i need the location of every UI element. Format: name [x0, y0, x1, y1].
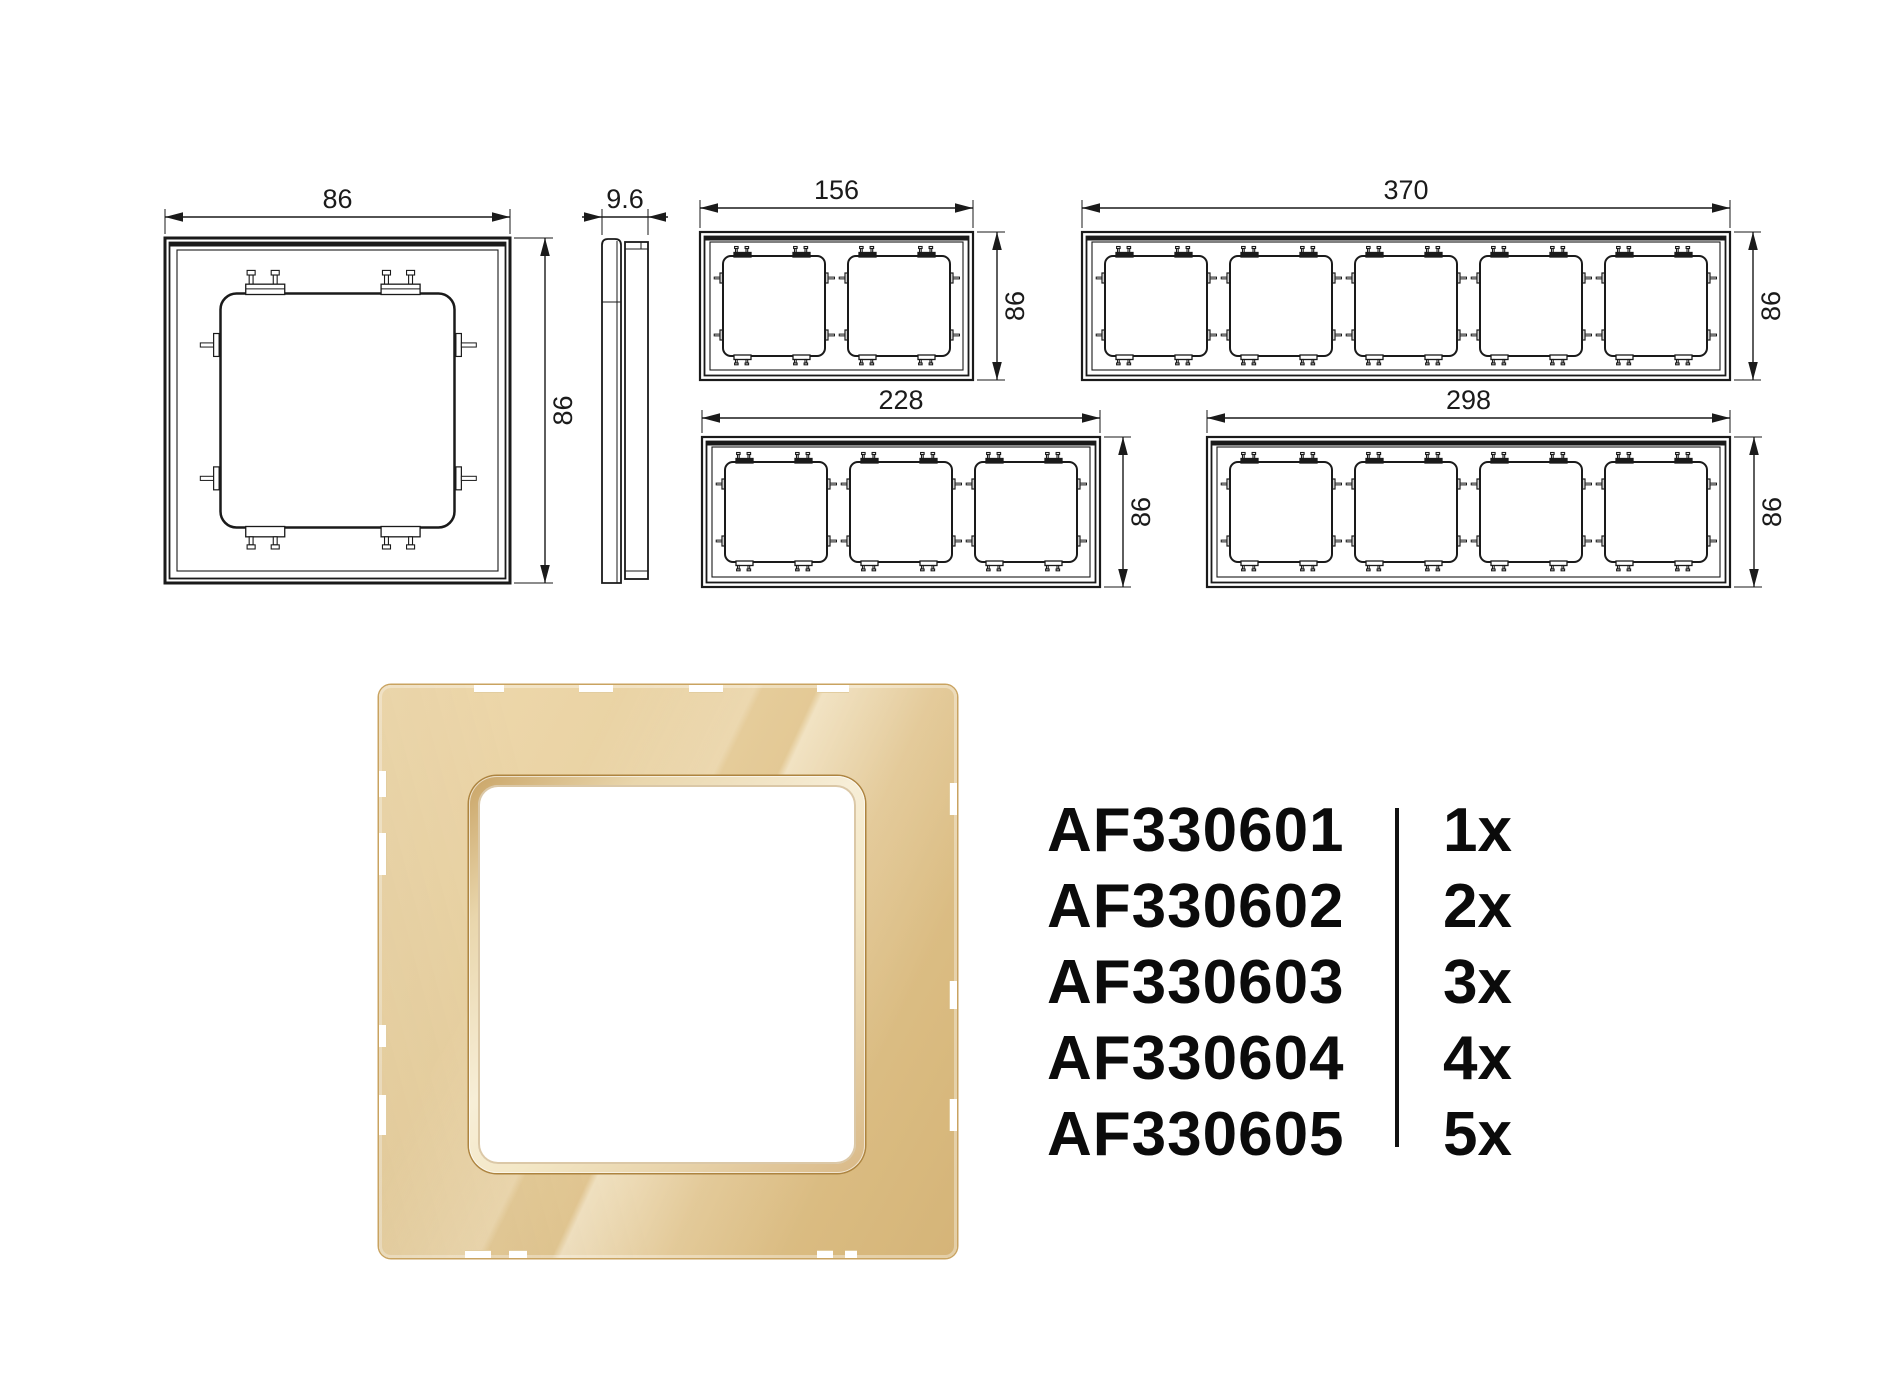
dimension-horizontal: 9.6: [582, 184, 668, 235]
dim-arrow-left: [700, 203, 718, 213]
tab-foot-head: [382, 545, 390, 549]
gang-quantity: 1x: [1395, 795, 1512, 866]
tab-foot-head: [1186, 363, 1190, 365]
tab-pin-head: [1676, 453, 1680, 455]
side-clip-bar: [1227, 273, 1229, 283]
tab-foot-head: [1176, 363, 1180, 365]
dim-arrow-left: [1207, 413, 1225, 423]
dim-arrow-up: [540, 238, 550, 256]
dim-arrow-right: [492, 212, 510, 222]
side-clip-stem: [1335, 483, 1342, 485]
product-code: AF330601: [1047, 795, 1395, 866]
tab-pin-head: [1502, 453, 1506, 455]
tab-foot: [385, 537, 389, 545]
tab-pin-head: [1117, 247, 1121, 249]
mounting-clip-notch: [949, 783, 957, 815]
dimension-label: 86: [1126, 497, 1156, 527]
module-opening: [1105, 256, 1207, 356]
side-clip-bar: [847, 479, 849, 489]
side-clip-stem: [1585, 483, 1592, 485]
tab-foot-head: [1551, 569, 1555, 571]
dimension-horizontal: 370: [1082, 175, 1730, 228]
dimension-vertical: 86: [1104, 437, 1156, 587]
tab-pin-head: [1617, 453, 1621, 455]
bottom-tab: [1425, 355, 1442, 360]
dim-arrow-left: [165, 212, 183, 222]
top-tab: [1366, 253, 1383, 258]
tab-pin-head: [1301, 247, 1305, 249]
top-tab: [986, 459, 1003, 464]
module-opening: [1605, 256, 1707, 356]
tab-pin: [249, 275, 253, 284]
tab-pin-head: [1242, 453, 1246, 455]
tab-foot-head: [919, 363, 923, 365]
dim-arrow-down: [1118, 569, 1128, 587]
side-clip-stem: [1460, 334, 1467, 336]
tab-foot-head: [794, 363, 798, 365]
dimension-vertical: 86: [514, 238, 578, 583]
tab-pin-head: [921, 453, 925, 455]
tab-pin-head: [1561, 247, 1565, 249]
tab-foot-head: [1627, 569, 1631, 571]
tab-foot-head: [1301, 363, 1305, 365]
top-tab: [1425, 459, 1442, 464]
bottom-tab: [918, 355, 935, 360]
tab-foot-head: [1561, 363, 1565, 365]
top-tab: [795, 459, 812, 464]
side-clip-bar: [1352, 536, 1354, 546]
side-clip-stem: [1080, 483, 1087, 485]
gang-quantity: 2x: [1395, 871, 1512, 942]
tab-foot-head: [1426, 569, 1430, 571]
tab-foot-head: [1301, 569, 1305, 571]
side-clip-bar: [1602, 479, 1604, 489]
bottom-tab: [1425, 561, 1442, 566]
dimension-horizontal: 228: [702, 385, 1100, 433]
side-clip-stem: [1335, 540, 1342, 542]
tab-foot-head: [1311, 363, 1315, 365]
tab-foot-head: [1686, 569, 1690, 571]
tab-foot-head: [1242, 569, 1246, 571]
tab-foot-head: [1117, 363, 1121, 365]
side-clip-stem: [953, 277, 960, 279]
dim-arrow-right: [1082, 413, 1100, 423]
side-clip-bar: [845, 273, 847, 283]
tab-foot-head: [929, 363, 933, 365]
tab-pin-head: [1436, 453, 1440, 455]
product-spec-sheet: 8686156863708622886298869.6 AF3306011xAF…: [0, 0, 1900, 1400]
top-tab: [1491, 459, 1508, 464]
mounting-clip-notch: [379, 1095, 387, 1135]
tab-pin-head: [271, 270, 279, 275]
mounting-clip-notch: [949, 981, 957, 1009]
dim-arrow-right: [955, 203, 973, 213]
tab-foot-head: [1617, 363, 1621, 365]
tab-foot-head: [796, 569, 800, 571]
tab-foot-head: [1676, 569, 1680, 571]
module-opening-cutout: [478, 785, 856, 1164]
tab-pin-head: [1561, 453, 1565, 455]
mounting-clip-notch: [579, 685, 613, 693]
bottom-tab: [1045, 561, 1062, 566]
top-tab: [734, 253, 751, 258]
dimension-label: 86: [1000, 291, 1030, 321]
tab-pin-head: [1056, 453, 1060, 455]
tab-pin-head: [737, 453, 741, 455]
dim-arrow-up: [1748, 232, 1758, 250]
mounting-clip-notch: [845, 1250, 857, 1258]
tab-foot-head: [1367, 363, 1371, 365]
dim-arrow-up: [1118, 437, 1128, 455]
dim-arrow-up: [992, 232, 1002, 250]
tab-foot-head: [1617, 569, 1621, 571]
dimension-horizontal: 298: [1207, 385, 1730, 433]
tab-foot-head: [1377, 363, 1381, 365]
side-clip-bar: [214, 467, 220, 490]
top-tab: [1491, 253, 1508, 258]
dimension-label: 228: [878, 385, 923, 415]
side-clip-stem: [200, 476, 215, 480]
tab-pin-head: [1676, 247, 1680, 249]
dimension-label: 86: [1756, 291, 1786, 321]
side-clip-bar: [1477, 330, 1479, 340]
tab-pin: [385, 275, 389, 284]
top-tab: [1175, 253, 1192, 258]
bottom-tab: [1491, 355, 1508, 360]
tab-foot-head: [1492, 569, 1496, 571]
side-clip-stem: [1335, 277, 1342, 279]
tab-foot-head: [1242, 363, 1246, 365]
tab-pin-head: [1377, 453, 1381, 455]
tab-pin-head: [1377, 247, 1381, 249]
bottom-tab: [920, 561, 937, 566]
top-tab: [1425, 253, 1442, 258]
mounting-clip-notch: [379, 771, 387, 797]
side-clip-bar: [847, 536, 849, 546]
tab-foot-head: [1551, 363, 1555, 365]
tab-pin-head: [1686, 453, 1690, 455]
product-code: AF330602: [1047, 871, 1395, 942]
dim-arrow-left: [584, 212, 602, 222]
code-row: AF3306022x: [1047, 868, 1512, 944]
side-clip-bar: [1227, 479, 1229, 489]
side-clip-bar: [214, 334, 220, 357]
bottom-tab: [1491, 561, 1508, 566]
bottom-tab: [1241, 561, 1258, 566]
side-clip-bar: [1102, 330, 1104, 340]
dimension-horizontal: 86: [165, 184, 510, 234]
side-clip-stem: [1710, 540, 1717, 542]
tab-pin-head: [1311, 453, 1315, 455]
top-tab: [1675, 459, 1692, 464]
bottom-tab: [795, 561, 812, 566]
dimension-label: 156: [814, 175, 859, 205]
side-clip-stem: [1710, 483, 1717, 485]
side-clip-bar: [720, 330, 722, 340]
tab-pin-head: [1627, 453, 1631, 455]
tab-pin-head: [407, 270, 415, 275]
bottom-tab: [1116, 355, 1133, 360]
side-clip-stem: [1585, 540, 1592, 542]
tab-pin-head: [1301, 453, 1305, 455]
tab-pin-head: [1367, 453, 1371, 455]
dim-arrow-down: [992, 362, 1002, 380]
side-clip-stem: [955, 483, 962, 485]
top-tab: [859, 253, 876, 258]
side-clip-bar: [1352, 330, 1354, 340]
bottom-tab: [1300, 355, 1317, 360]
tab-pin-head: [745, 247, 749, 249]
tab-pin-head: [1492, 453, 1496, 455]
tab-foot-head: [1377, 569, 1381, 571]
gang-quantity: 3x: [1395, 947, 1512, 1018]
tab-foot-head: [806, 569, 810, 571]
side-clip-bar: [456, 334, 462, 357]
side-clip-stem: [830, 483, 837, 485]
bottom-tab: [861, 561, 878, 566]
dim-arrow-left: [702, 413, 720, 423]
gold-frame-render: [379, 685, 957, 1258]
mounting-clip-notch: [379, 833, 387, 875]
tab-foot-head: [1502, 363, 1506, 365]
tab-foot-head: [931, 569, 935, 571]
frame-2gang: 15686: [700, 175, 1030, 380]
top-tab: [920, 459, 937, 464]
bottom-tab: [859, 355, 876, 360]
tab-pin-head: [1436, 247, 1440, 249]
dimension-label: 86: [1757, 497, 1787, 527]
dimension-label: 86: [322, 184, 352, 214]
tab-pin-head: [382, 270, 390, 275]
tab-pin-head: [1242, 247, 1246, 249]
tab-foot-head: [1127, 363, 1131, 365]
bottom-tab: [381, 527, 420, 537]
mounting-clip-notch: [509, 1250, 527, 1258]
dimension-vertical: 86: [1734, 232, 1786, 380]
tab-pin-head: [872, 453, 876, 455]
side-clip-bar: [1602, 273, 1604, 283]
tab-foot-head: [870, 363, 874, 365]
tab-pin-head: [796, 453, 800, 455]
tab-pin-head: [1426, 453, 1430, 455]
tab-foot-head: [737, 569, 741, 571]
top-tab: [1550, 459, 1567, 464]
tab-foot-head: [862, 569, 866, 571]
top-tab: [1616, 459, 1633, 464]
tab-pin-head: [931, 453, 935, 455]
bottom-tab: [1550, 561, 1567, 566]
tab-foot-head: [1436, 363, 1440, 365]
gang-quantity: 4x: [1395, 1023, 1512, 1094]
side-clip-bar: [456, 467, 462, 490]
bottom-tab: [1300, 561, 1317, 566]
tab-foot-head: [1627, 363, 1631, 365]
dimension-vertical: 86: [977, 232, 1030, 380]
dimension-label: 370: [1383, 175, 1428, 205]
dim-arrow-right: [648, 212, 666, 222]
bottom-tab: [1675, 561, 1692, 566]
module-opening: [221, 294, 455, 528]
top-tab: [1300, 459, 1317, 464]
top-tab: [246, 284, 285, 294]
tab-foot-head: [987, 569, 991, 571]
top-tab: [1550, 253, 1567, 258]
tab-foot-head: [747, 569, 751, 571]
dim-arrow-right: [1712, 203, 1730, 213]
bottom-tab: [793, 355, 810, 360]
code-row: AF3306033x: [1047, 944, 1512, 1020]
tab-foot: [249, 537, 253, 545]
tab-pin-head: [919, 247, 923, 249]
tab-pin-head: [1046, 453, 1050, 455]
frame-1gang: 8686: [165, 184, 578, 583]
side-clip-stem: [1710, 334, 1717, 336]
dim-arrow-up: [1749, 437, 1759, 455]
frame-top-shade: [1212, 442, 1725, 446]
mounting-clip-notch: [949, 1099, 957, 1131]
side-clip-stem: [1710, 277, 1717, 279]
side-clip-stem: [955, 540, 962, 542]
tab-foot-head: [804, 363, 808, 365]
dimension-label: 298: [1446, 385, 1491, 415]
side-clip-bar: [1477, 273, 1479, 283]
module-opening: [1480, 256, 1582, 356]
code-row: AF3306044x: [1047, 1020, 1512, 1096]
product-code-list: AF3306011xAF3306022xAF3306033xAF3306044x…: [1047, 792, 1512, 1172]
dim-arrow-down: [540, 565, 550, 583]
code-list-divider: [1395, 808, 1399, 1147]
side-clip-stem: [828, 277, 835, 279]
dimension-horizontal: 156: [700, 175, 973, 228]
side-clip-bar: [720, 273, 722, 283]
bottom-tab: [986, 561, 1003, 566]
tab-foot-head: [1252, 363, 1256, 365]
mounting-clip-notch: [817, 685, 849, 693]
side-clip-bar: [1352, 479, 1354, 489]
mounting-clip-notch: [379, 1025, 387, 1047]
side-clip-bar: [1477, 479, 1479, 489]
tab-foot: [273, 537, 277, 545]
product-code: AF330603: [1047, 947, 1395, 1018]
module-opening: [975, 462, 1077, 562]
side-clip-stem: [828, 334, 835, 336]
module-opening: [1480, 462, 1582, 562]
mounting-clip-notch: [465, 1250, 491, 1258]
tab-pin-head: [1127, 247, 1131, 249]
tab-pin-head: [1617, 247, 1621, 249]
top-tab: [1116, 253, 1133, 258]
tab-foot-head: [407, 545, 415, 549]
dim-arrow-down: [1749, 569, 1759, 587]
side-clip-stem: [953, 334, 960, 336]
tab-pin-head: [1176, 247, 1180, 249]
module-opening: [723, 256, 825, 356]
side-clip-bar: [1477, 536, 1479, 546]
top-tab: [1366, 459, 1383, 464]
tab-foot-head: [1311, 569, 1315, 571]
frame-top-shade: [707, 442, 1095, 446]
dim-arrow-right: [1712, 413, 1730, 423]
tab-foot-head: [921, 569, 925, 571]
profile-view: 9.6: [582, 184, 668, 583]
module-opening-bevel: [469, 776, 865, 1173]
top-tab: [1241, 253, 1258, 258]
tab-pin-head: [794, 247, 798, 249]
code-row: AF3306011x: [1047, 792, 1512, 868]
tab-pin-head: [860, 247, 864, 249]
tab-pin-head: [1686, 247, 1690, 249]
side-clip-stem: [1460, 277, 1467, 279]
tab-pin: [273, 275, 277, 284]
tab-pin-head: [747, 453, 751, 455]
product-code: AF330605: [1047, 1099, 1395, 1170]
bottom-tab: [246, 527, 285, 537]
side-clip-stem: [1080, 540, 1087, 542]
bottom-tab: [1175, 355, 1192, 360]
tab-foot-head: [1046, 569, 1050, 571]
tab-foot-head: [1676, 363, 1680, 365]
side-clip-stem: [461, 343, 476, 347]
tab-foot-head: [1252, 569, 1256, 571]
tab-foot-head: [1056, 569, 1060, 571]
code-row: AF3306055x: [1047, 1096, 1512, 1172]
tab-foot-head: [1502, 569, 1506, 571]
tab-foot-head: [1367, 569, 1371, 571]
tab-foot-head: [271, 545, 279, 549]
tab-foot-head: [1561, 569, 1565, 571]
frame-3gang: 22886: [702, 385, 1156, 587]
side-clip-stem: [200, 343, 215, 347]
dim-arrow-left: [1082, 203, 1100, 213]
tab-pin-head: [1502, 247, 1506, 249]
frame-4gang: 29886: [1207, 385, 1787, 587]
tab-foot: [409, 537, 413, 545]
tab-foot-head: [247, 545, 255, 549]
top-tab: [381, 284, 420, 294]
module-opening: [1230, 462, 1332, 562]
top-tab: [861, 459, 878, 464]
tab-pin-head: [1311, 247, 1315, 249]
tab-pin-head: [987, 453, 991, 455]
top-tab: [1241, 459, 1258, 464]
bottom-tab: [1366, 561, 1383, 566]
tab-foot-head: [1686, 363, 1690, 365]
side-clip-bar: [1602, 330, 1604, 340]
side-clip-bar: [1227, 536, 1229, 546]
tab-pin-head: [997, 453, 1001, 455]
tab-foot-head: [1492, 363, 1496, 365]
side-clip-bar: [1102, 273, 1104, 283]
tab-foot-head: [1426, 363, 1430, 365]
module-opening: [1355, 462, 1457, 562]
bottom-tab: [1241, 355, 1258, 360]
tab-pin-head: [1426, 247, 1430, 249]
side-clip-stem: [461, 476, 476, 480]
bottom-tab: [736, 561, 753, 566]
tab-foot-head: [1436, 569, 1440, 571]
top-tab: [918, 253, 935, 258]
module-opening: [725, 462, 827, 562]
top-tab: [1675, 253, 1692, 258]
side-clip-stem: [830, 540, 837, 542]
module-opening: [1230, 256, 1332, 356]
bottom-tab: [734, 355, 751, 360]
frame-5gang: 37086: [1082, 175, 1786, 380]
profile-front-plate: [602, 239, 621, 583]
mounting-clip-notch: [817, 1250, 833, 1258]
tab-pin-head: [1492, 247, 1496, 249]
gang-quantity: 5x: [1395, 1099, 1512, 1170]
